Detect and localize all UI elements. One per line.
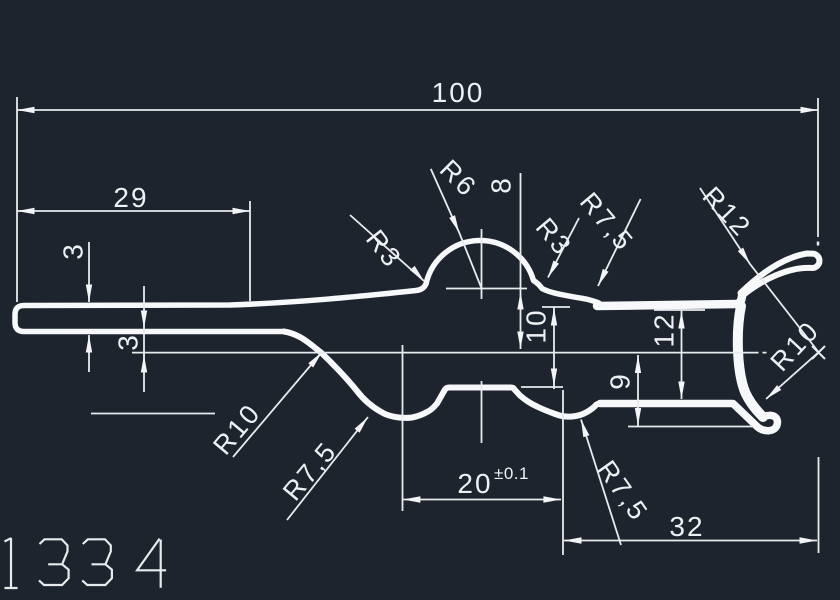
svg-text:12: 12 xyxy=(649,312,680,347)
svg-text:3: 3 xyxy=(113,333,144,351)
svg-text:32: 32 xyxy=(669,511,704,542)
svg-text:29: 29 xyxy=(113,182,148,213)
svg-text:±0.1: ±0.1 xyxy=(494,464,529,483)
svg-text:8: 8 xyxy=(486,176,517,194)
svg-text:20: 20 xyxy=(457,468,492,499)
svg-text:3: 3 xyxy=(58,242,89,260)
svg-text:100: 100 xyxy=(432,77,485,108)
svg-text:10: 10 xyxy=(521,308,552,343)
svg-text:9: 9 xyxy=(605,372,636,390)
